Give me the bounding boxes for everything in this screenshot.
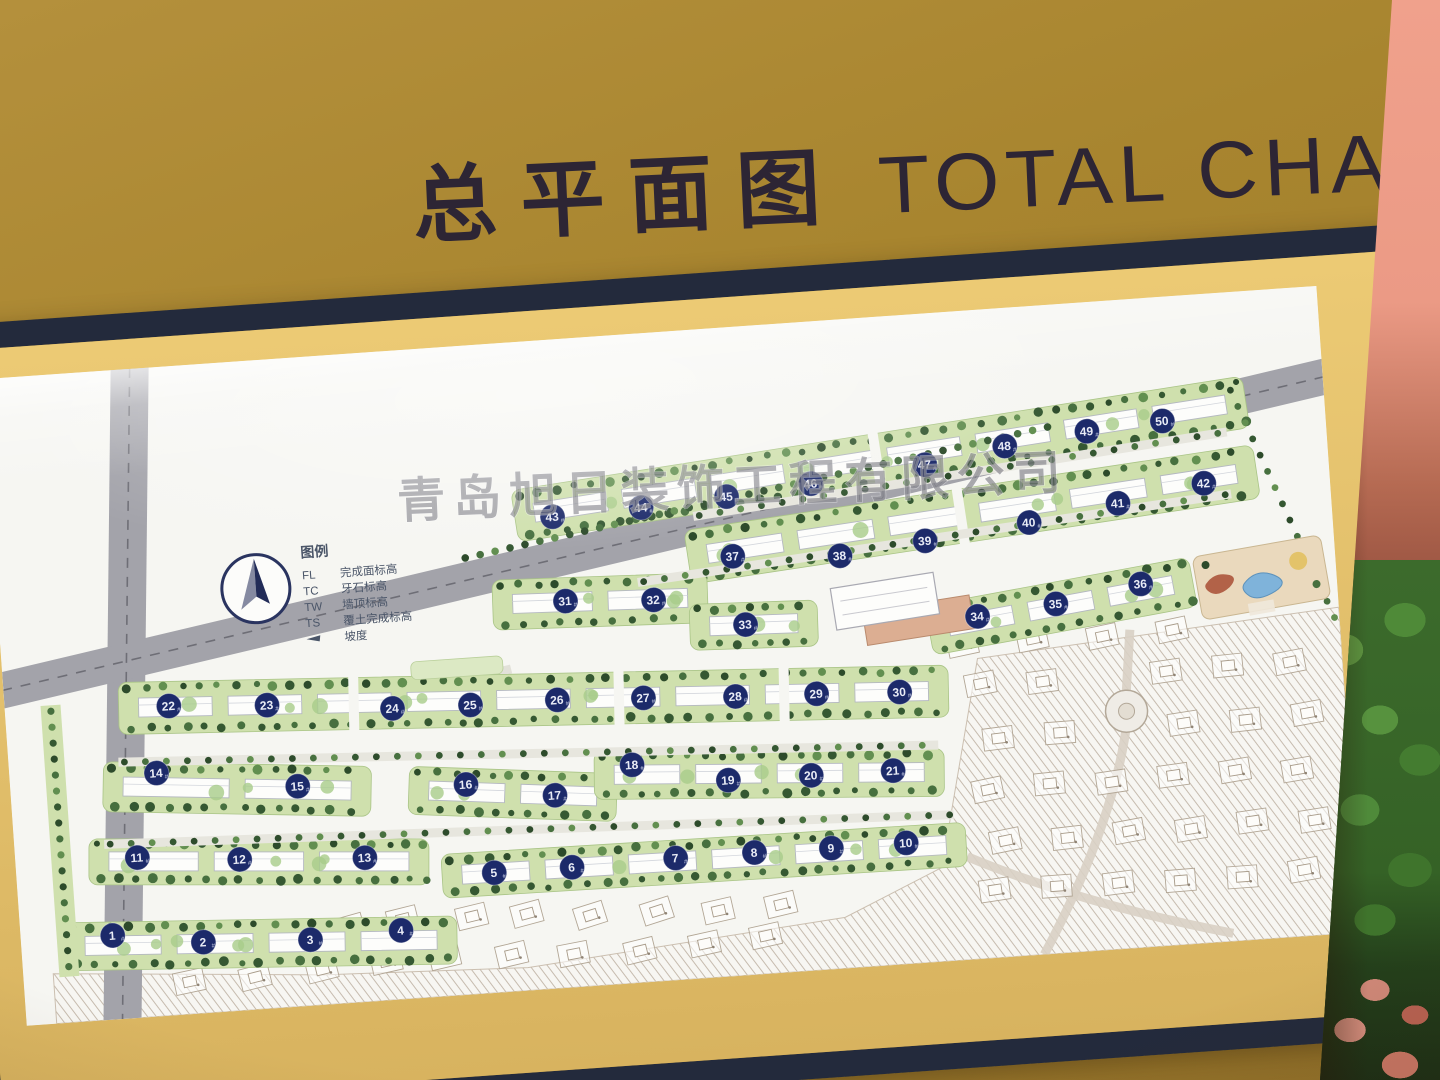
marker-number: 50 <box>1155 414 1170 429</box>
house <box>1221 660 1235 671</box>
tree <box>330 840 338 848</box>
internal-road-gap <box>613 670 624 728</box>
residential-strip <box>103 761 372 816</box>
tree <box>401 839 410 848</box>
tree <box>812 751 821 760</box>
village-house <box>1044 720 1076 744</box>
house <box>992 733 1006 745</box>
marker-number: 21 <box>885 763 900 778</box>
marker-number: 1 <box>108 928 116 942</box>
house <box>1239 714 1253 725</box>
tree <box>166 875 176 885</box>
house <box>1050 881 1064 892</box>
tree <box>218 876 227 885</box>
shrub <box>680 769 694 783</box>
tree <box>670 788 679 797</box>
marker-number: 25 <box>463 698 478 713</box>
marker-number: 11 <box>130 850 144 865</box>
internal-road-gap <box>348 675 359 733</box>
tree <box>132 875 139 882</box>
marker-number: 49 <box>1079 424 1094 439</box>
tree <box>923 750 933 760</box>
village-house <box>1287 856 1320 883</box>
tree <box>114 873 124 883</box>
tree <box>356 877 363 884</box>
marker-number: 29 <box>809 687 824 702</box>
village-house <box>1298 807 1331 833</box>
village-house <box>1229 707 1261 732</box>
marker-number: 8 <box>750 846 758 860</box>
tree <box>234 875 243 884</box>
tree <box>639 791 645 797</box>
tree <box>864 750 874 760</box>
house <box>759 929 774 942</box>
village-house <box>1227 865 1259 889</box>
village-house <box>982 726 1015 752</box>
village-house <box>1051 825 1083 850</box>
tree <box>828 751 837 760</box>
village-house <box>1102 870 1135 896</box>
house <box>1308 814 1322 826</box>
house <box>998 834 1013 846</box>
site-plan-drawing: 图例FL完成面标高TC牙石标高TW墙顶标高TS覆土完成标高坡度1#2#3#4#5… <box>0 286 1362 1026</box>
house <box>981 783 996 795</box>
building-footprint <box>512 592 592 614</box>
marker-number: 23 <box>259 698 274 713</box>
marker-number: 28 <box>728 689 743 704</box>
tree <box>148 873 158 883</box>
house <box>1053 727 1067 738</box>
tree <box>778 752 787 761</box>
marker-number: 5 <box>490 866 498 880</box>
marker-number: 17 <box>547 788 562 803</box>
village-house <box>1041 874 1072 898</box>
house <box>1283 656 1298 668</box>
village-house <box>1095 769 1128 795</box>
marker-number: 39 <box>918 534 933 549</box>
tree <box>620 790 628 798</box>
marker-number: 26 <box>550 693 565 708</box>
house <box>1165 624 1180 636</box>
tree <box>423 876 430 883</box>
marker-number: 16 <box>458 777 473 792</box>
tree <box>185 875 192 882</box>
marker-number: 15 <box>290 779 305 794</box>
house <box>1095 630 1110 642</box>
internal-road-gap <box>779 666 790 724</box>
marker-number: 20 <box>804 768 819 783</box>
marker-number: 24 <box>385 701 400 716</box>
house <box>1166 769 1180 781</box>
marker-number: 7 <box>671 851 679 865</box>
tree <box>603 790 610 797</box>
legend-code: TW <box>304 601 323 614</box>
tree <box>833 787 840 794</box>
marker-number: 34 <box>970 609 985 624</box>
tree <box>276 876 286 886</box>
marker-number: 3 <box>306 933 314 947</box>
tree <box>798 752 805 759</box>
shrub <box>270 856 281 867</box>
village-house <box>1212 653 1244 678</box>
tree <box>654 791 661 798</box>
gold-mat-border: 图例FL完成面标高TC牙石标高TW墙顶标高TS覆土完成标高坡度1#2#3#4#5… <box>0 250 1440 1080</box>
house <box>698 937 713 950</box>
marker-number: 19 <box>721 773 736 788</box>
village-house <box>1218 757 1251 784</box>
board-title-chinese: 总平面图 <box>410 120 847 260</box>
house <box>1112 877 1126 889</box>
marker-number: 36 <box>1133 577 1148 592</box>
legend-code: TC <box>303 585 319 598</box>
village-house <box>1167 710 1200 736</box>
house <box>1228 764 1242 776</box>
tree <box>293 874 303 884</box>
village-house <box>1174 816 1207 843</box>
tree <box>391 876 399 884</box>
tree <box>928 785 937 794</box>
shrub <box>754 765 768 779</box>
tree <box>847 751 855 759</box>
house <box>973 678 988 690</box>
tree <box>888 787 894 793</box>
marker-number: 33 <box>738 617 753 632</box>
house <box>1061 832 1075 843</box>
marker-number: 32 <box>646 593 661 608</box>
house <box>1122 825 1137 837</box>
village-house <box>1033 771 1065 796</box>
village-house <box>1280 756 1313 783</box>
tree <box>762 788 769 795</box>
house <box>1036 676 1050 688</box>
house <box>1246 815 1260 827</box>
tree <box>782 788 792 798</box>
legend-label: 坡度 <box>344 628 368 644</box>
house <box>1043 778 1057 789</box>
tree <box>96 874 105 883</box>
marker-number: 35 <box>1048 597 1063 612</box>
village-house <box>1165 868 1197 892</box>
marker-number: 22 <box>161 699 176 714</box>
house <box>988 884 1002 896</box>
roundabout-center <box>1118 703 1135 720</box>
marker-number: 9 <box>827 841 835 855</box>
tree <box>740 790 749 799</box>
residential-strip <box>408 766 618 822</box>
tree <box>94 841 100 847</box>
marker-number: 14 <box>149 766 164 781</box>
house <box>1159 665 1173 677</box>
site-plan-panel: 图例FL完成面标高TC牙石标高TW墙顶标高TS覆土完成标高坡度1#2#3#4#5… <box>0 223 1440 1080</box>
house <box>182 975 197 987</box>
village-house <box>978 877 1011 903</box>
house <box>1184 823 1198 835</box>
legend-code: FL <box>302 569 317 582</box>
tree <box>719 753 726 760</box>
marker-number: 2 <box>199 935 207 949</box>
tree <box>706 788 714 796</box>
marker-number: 41 <box>1110 496 1125 511</box>
photo-of-site-plan-board: 总平面图 TOTAL CHART 图例FL完成面标高TC牙石标高TW墙顶标高TS… <box>0 0 1440 1080</box>
tree <box>407 876 413 882</box>
tree <box>371 876 380 885</box>
marker-number: 13 <box>357 850 372 865</box>
village-house <box>1149 658 1182 684</box>
tree <box>852 787 858 793</box>
tree <box>388 842 394 848</box>
marker-number: 6 <box>568 860 576 874</box>
tree <box>908 787 915 794</box>
tree <box>290 841 299 850</box>
board-title-english: TOTAL CHART <box>876 110 1440 232</box>
house <box>1236 871 1250 882</box>
shrub <box>319 854 329 864</box>
marker-number: 38 <box>832 549 847 564</box>
site-plan-map: 图例FL完成面标高TC牙石标高TW墙顶标高TS覆土完成标高坡度1#2#3#4#5… <box>0 286 1362 1026</box>
marker-number: 12 <box>232 852 247 867</box>
tree <box>418 840 427 849</box>
marker-number: 10 <box>899 836 914 851</box>
marker-number: 30 <box>892 685 907 700</box>
tree <box>309 841 318 850</box>
house <box>567 948 582 960</box>
tree <box>202 875 210 883</box>
village-house <box>1157 762 1190 788</box>
house <box>1177 717 1191 729</box>
house <box>1105 776 1119 788</box>
marker-number: 42 <box>1196 476 1211 491</box>
tree <box>883 751 891 759</box>
legend-code: TS <box>305 617 321 630</box>
marker-number: 4 <box>397 923 405 937</box>
house <box>1297 864 1312 876</box>
tree <box>314 877 321 884</box>
tree <box>818 790 825 797</box>
tree <box>869 788 878 797</box>
marker-number: 31 <box>558 594 573 609</box>
tree <box>333 875 341 883</box>
tree <box>687 789 695 797</box>
house <box>1174 875 1188 886</box>
house <box>1300 707 1315 719</box>
house <box>1290 763 1305 775</box>
tree <box>256 877 263 884</box>
marker-number: 27 <box>636 691 651 706</box>
legend-heading: 图例 <box>300 543 329 561</box>
marker-number: 18 <box>624 758 639 773</box>
marker-number: 40 <box>1022 515 1037 530</box>
village-house <box>1236 808 1269 834</box>
marker-number: 37 <box>725 549 740 564</box>
village-house <box>1026 669 1059 695</box>
